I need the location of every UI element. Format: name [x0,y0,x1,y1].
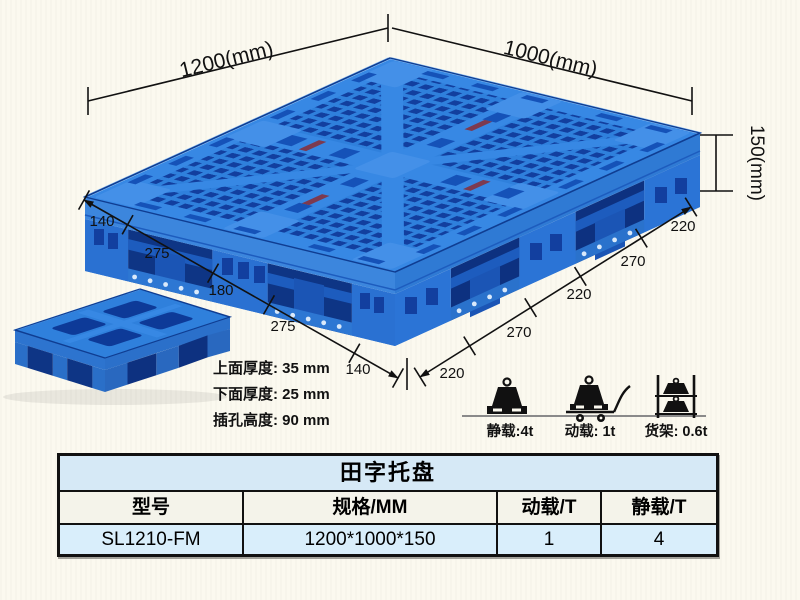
rack-load-label: 货架: 0.6t [645,422,708,440]
left-chain-label-2: 180 [208,282,233,299]
header-static-load: 静载/T [600,492,716,523]
table-data-row: SL1210-FM 1200*1000*150 1 4 [60,523,716,554]
product-spec-sheet: 1200(mm) 1000(mm) 150(mm) 140 275 180 27… [0,0,800,600]
right-chain-label-3: 270 [620,253,645,270]
cell-model: SL1210-FM [60,525,242,554]
note-bottom-thickness: 下面厚度: 25 mm [213,385,330,403]
static-load-label: 静载:4t [487,422,534,440]
load-capacity-icons: 静载:4t 动载: 1t 货架: 0.6t [462,375,708,440]
note-slot-height: 插孔高度: 90 mm [213,411,330,429]
cell-spec: 1200*1000*150 [242,525,496,554]
static-load-weight-icon [487,379,527,415]
left-chain-label-0: 140 [89,213,114,230]
spec-table: 田字托盘 型号 规格/MM 动载/T 静载/T SL1210-FM 1200*1… [57,453,719,557]
right-chain-label-4: 220 [670,218,695,235]
rack-load-shelf-icon [655,375,697,418]
dim-label-1200: 1200(mm) [177,37,275,82]
header-dynamic-load: 动载/T [496,492,600,523]
thickness-notes: 上面厚度: 35 mm 下面厚度: 25 mm 插孔高度: 90 mm [213,359,330,429]
dim-label-1000: 1000(mm) [501,36,599,81]
header-model: 型号 [60,492,242,523]
pallet-illustration: 1200(mm) 1000(mm) 150(mm) 140 275 180 27… [0,0,800,452]
note-top-thickness: 上面厚度: 35 mm [213,359,330,377]
right-chain-label-2: 220 [566,286,591,303]
small-pallet [3,289,230,405]
table-title: 田字托盘 [60,456,716,490]
dim-label-150: 150(mm) [746,125,767,201]
left-chain-label-3: 275 [270,318,295,335]
right-chain-label-1: 270 [506,324,531,341]
right-chain-label-0: 220 [439,365,464,382]
table-header-row: 型号 规格/MM 动载/T 静载/T [60,490,716,523]
dynamic-load-label: 动载: 1t [565,422,616,440]
left-chain-label-4: 140 [345,361,370,378]
cell-static-load: 4 [600,525,716,554]
header-spec: 规格/MM [242,492,496,523]
cell-dynamic-load: 1 [496,525,600,554]
left-chain-label-1: 275 [144,245,169,262]
